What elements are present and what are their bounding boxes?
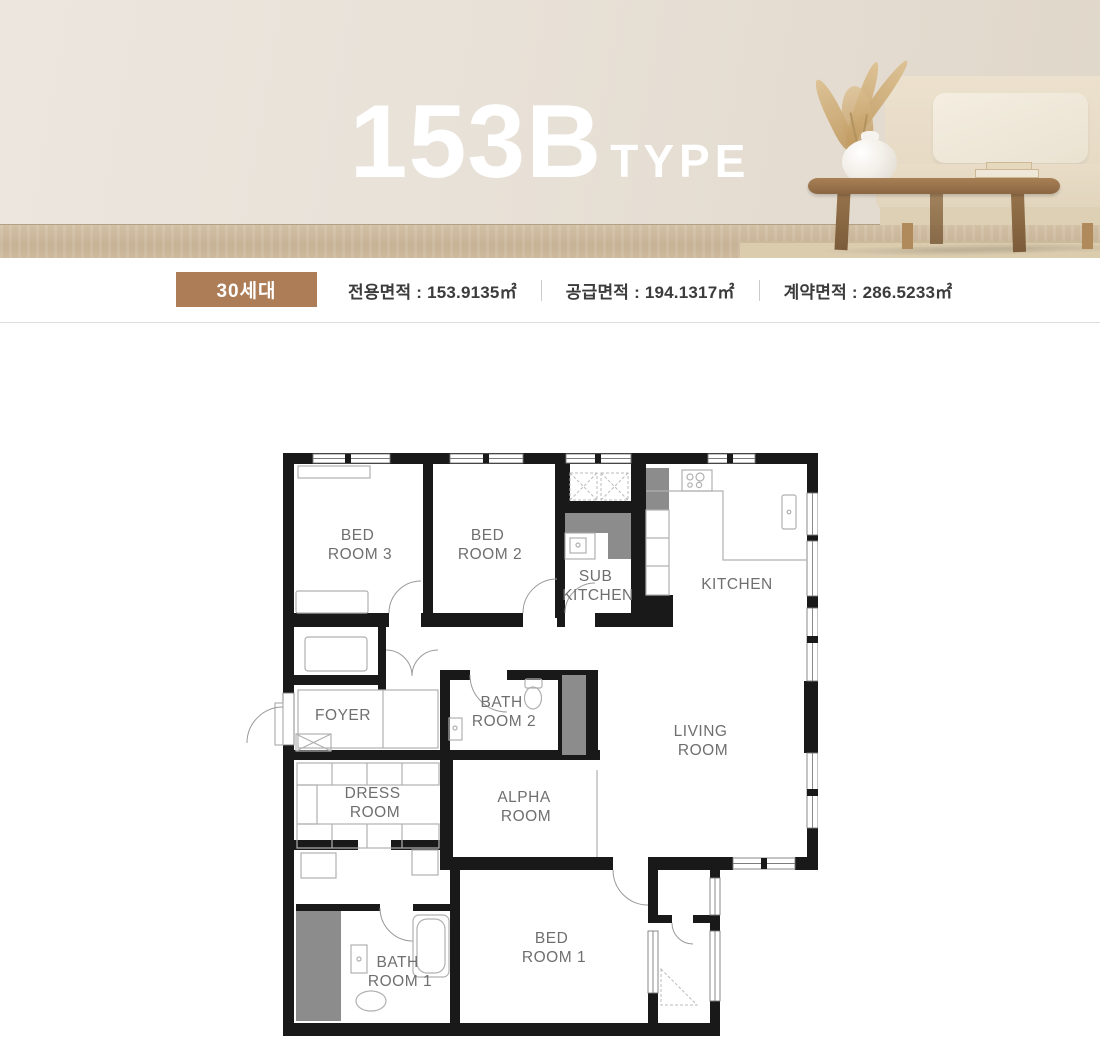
contract-area: 계약면적 : 286.5233㎡ (784, 278, 953, 303)
divider (541, 280, 542, 301)
stove-icon (682, 470, 712, 491)
kitchen-sink-icon (782, 495, 796, 529)
supply-area: 공급면적 : 194.1317㎡ (566, 278, 735, 303)
household-count-badge: 30세대 (176, 272, 317, 307)
room-label-sub-kitchen: SUB KITCHEN (562, 568, 634, 604)
room-label-dress-room: DRESS ROOM (345, 785, 406, 821)
washer-icons (570, 473, 628, 500)
room-label-bedroom2: BED ROOM 2 (458, 527, 522, 563)
sofa-frame (880, 207, 1100, 225)
unit-type-word: TYPE (610, 135, 750, 187)
table-leg (1011, 192, 1026, 252)
door-arcs (380, 579, 693, 944)
sofa-leg (902, 223, 913, 249)
table-leg (930, 192, 943, 244)
page-title: 153BTYPE (0, 90, 1100, 194)
entrance-door (247, 693, 294, 745)
floor-plan-drawing: BED ROOM 3 BED ROOM 2 SUB KITCHEN KITCHE… (243, 453, 818, 1036)
room-label-bedroom1: BED ROOM 1 (522, 930, 586, 966)
room-label-foyer: FOYER (315, 707, 371, 724)
sofa-leg (1082, 223, 1093, 249)
room-label-kitchen: KITCHEN (701, 576, 773, 593)
divider (759, 280, 760, 301)
spec-bar: 30세대 전용면적 : 153.9135㎡ 공급면적 : 194.1317㎡ 계… (0, 258, 1100, 323)
room-label-alpha-room: ALPHA ROOM (497, 789, 554, 825)
unit-type-number: 153B (350, 84, 603, 200)
hero-banner: 153BTYPE (0, 0, 1100, 258)
table-shadow (815, 246, 1065, 256)
exclusive-area: 전용면적 : 153.9135㎡ (348, 278, 517, 303)
room-label-living-room: LIVING ROOM (674, 723, 733, 759)
area-spec-list: 전용면적 : 153.9135㎡ 공급면적 : 194.1317㎡ 계약면적 :… (348, 258, 952, 322)
floor-plan: BED ROOM 3 BED ROOM 2 SUB KITCHEN KITCHE… (243, 453, 818, 1036)
room-label-bedroom3: BED ROOM 3 (328, 527, 392, 563)
